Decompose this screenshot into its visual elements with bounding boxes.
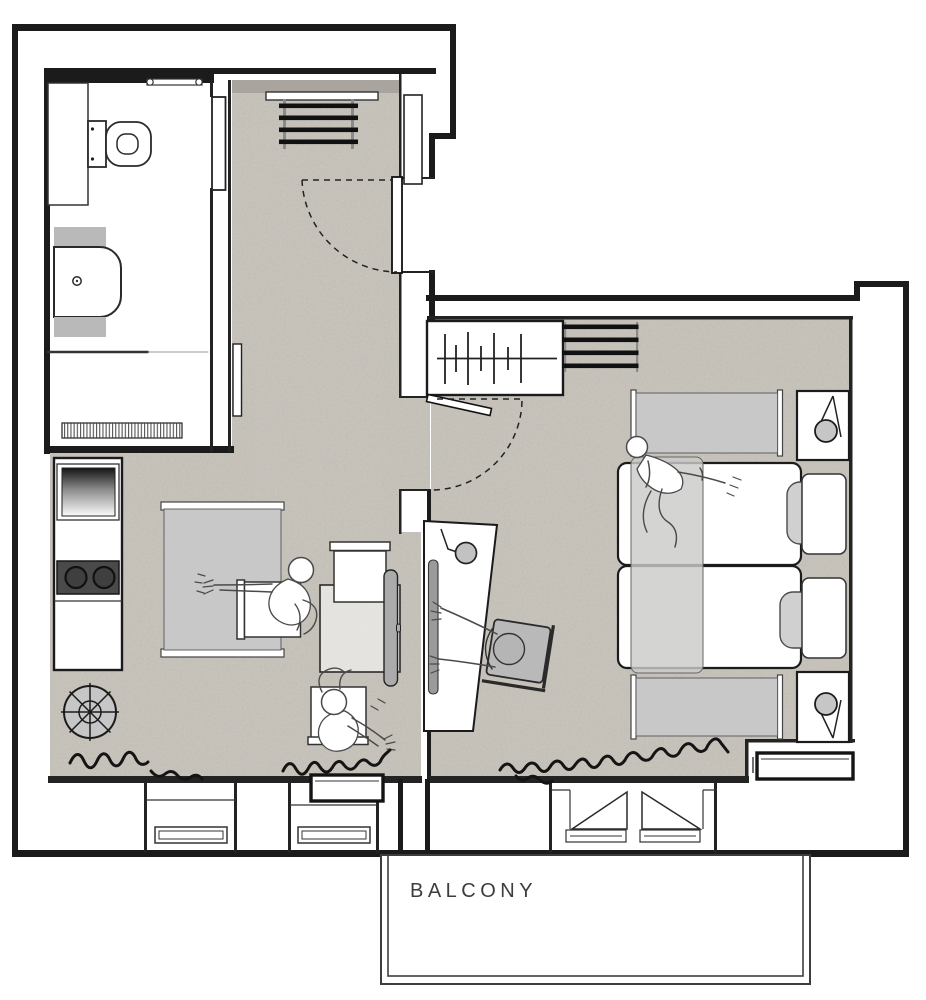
radiator-icon [311, 775, 383, 801]
headboard-icon [802, 578, 846, 658]
lamp-icon [815, 693, 837, 715]
sink-ledge [54, 317, 106, 337]
monitor-icon [429, 560, 439, 694]
nightstand-icon [797, 672, 849, 742]
toilet-icon [88, 121, 151, 167]
towel-rail-icon [147, 79, 202, 85]
round-table-icon [61, 683, 119, 741]
shower-mat-icon [62, 423, 182, 438]
wardrobe-icon [427, 321, 563, 395]
balcony-label: BALCONY [410, 880, 537, 902]
bathroom-sink-icon [54, 247, 121, 317]
chair-icon [330, 542, 390, 602]
radiator-icon [753, 753, 853, 779]
vanity-counter-icon [48, 83, 88, 205]
bench-icon [631, 675, 783, 739]
balcony: BALCONY [381, 855, 810, 984]
headboard-icon [802, 474, 846, 554]
hallway-top-shade [232, 80, 399, 93]
pocket-door-icon [212, 97, 226, 190]
sink-ledge [54, 227, 106, 247]
nightstand-icon [797, 391, 849, 460]
tv-panel-icon [384, 570, 401, 686]
wall-shaft-icon [404, 95, 422, 184]
wall-console-icon [233, 344, 242, 416]
desk-lamp-icon [456, 543, 477, 564]
floor-plan-page: BALCONY [0, 0, 926, 1000]
kitchen-sink-icon [57, 464, 119, 520]
lamp-icon [815, 420, 837, 442]
shoe-shelf-icon [266, 92, 378, 100]
bench-icon [631, 390, 783, 456]
floor-plan: BALCONY [0, 0, 926, 1000]
stove-icon [57, 561, 119, 594]
